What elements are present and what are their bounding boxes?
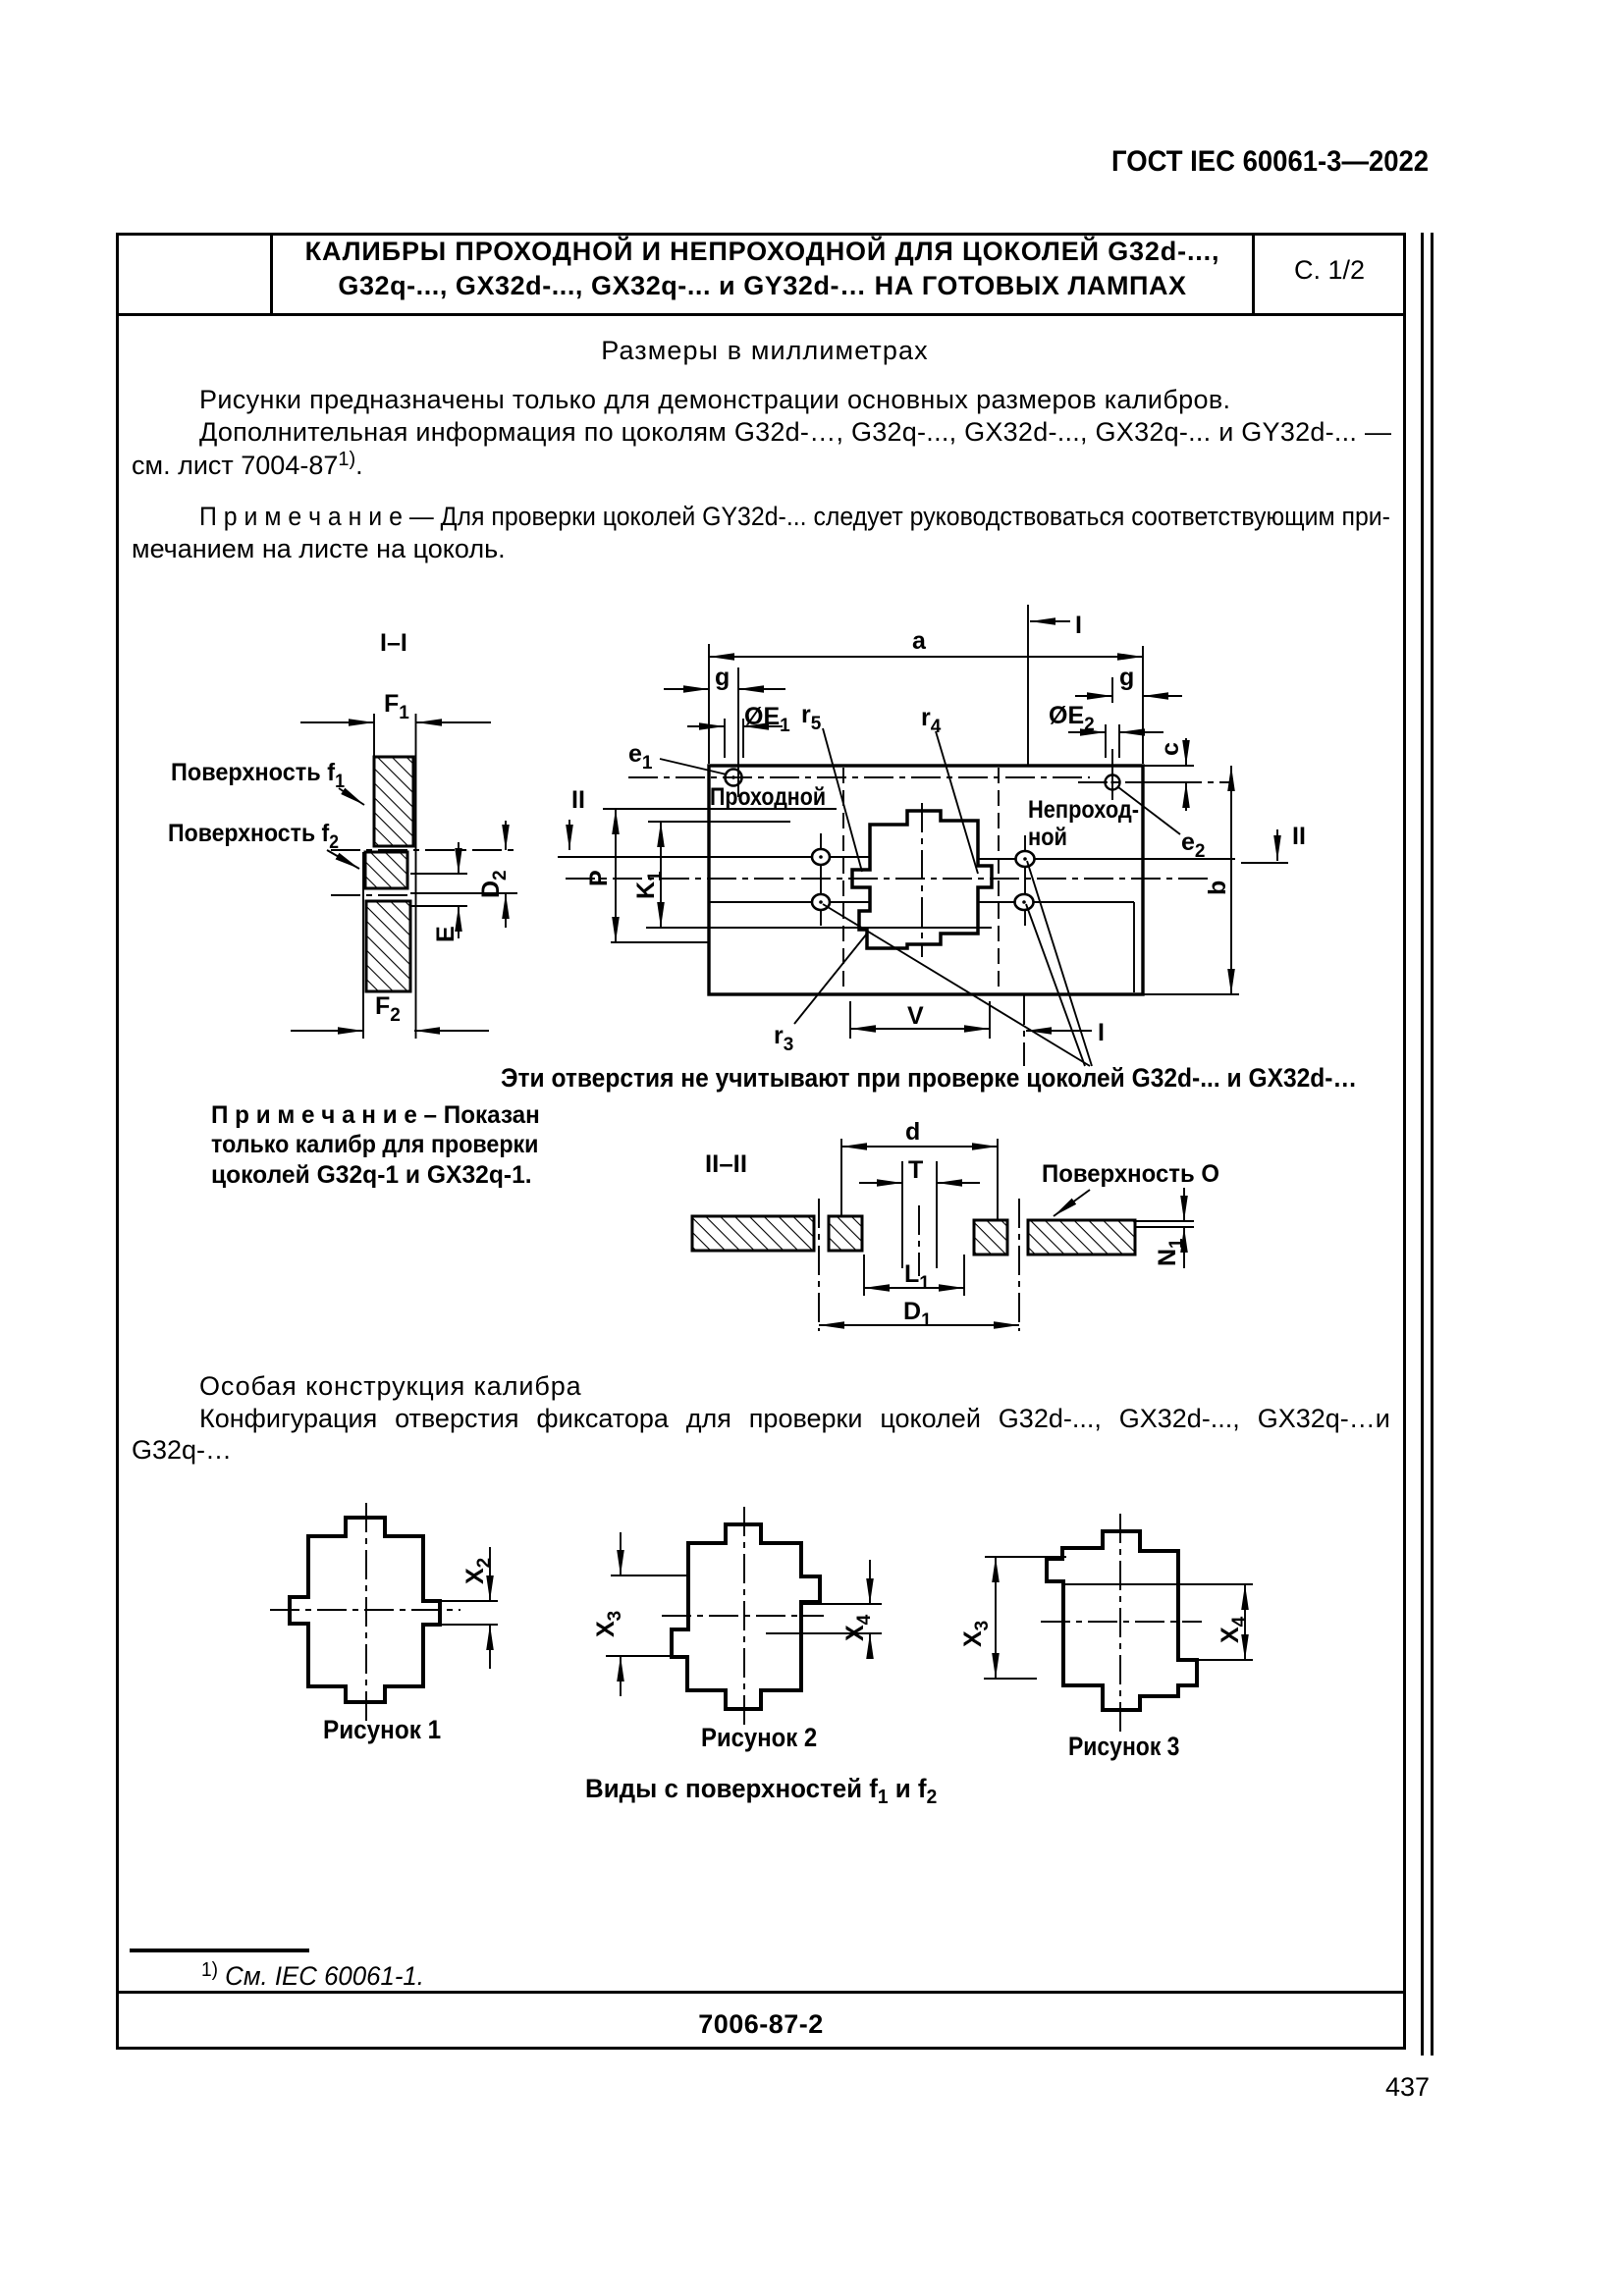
svg-text:F2: F2 [375,992,401,1026]
svg-text:Поверхность f2: Поверхность f2 [168,820,339,853]
svg-text:g: g [715,664,730,691]
svg-text:I: I [1098,1019,1105,1046]
svg-text:ØE2: ØE2 [1049,702,1095,735]
svg-text:Непроход-: Непроход- [1028,796,1139,824]
svg-text:II: II [571,786,585,814]
svg-text:P: P [585,870,613,886]
svg-text:e1: e1 [628,740,653,774]
svg-text:X3: X3 [592,1611,625,1637]
svg-text:g: g [1119,664,1134,691]
svg-text:r4: r4 [921,704,942,737]
svg-text:r5: r5 [801,701,822,734]
svg-text:r3: r3 [774,1022,793,1055]
svg-text:c: c [1157,742,1184,756]
svg-text:a: a [912,627,927,655]
svg-text:Проходной: Проходной [710,783,826,811]
svg-text:T: T [908,1156,923,1184]
svg-text:II–II: II–II [705,1150,747,1178]
svg-text:ØE1: ØE1 [744,703,790,736]
svg-text:e2: e2 [1181,828,1205,862]
svg-text:I–I: I–I [380,629,407,657]
svg-text:II: II [1292,823,1306,850]
svg-text:Поверхность f1: Поверхность f1 [171,759,345,792]
svg-text:X3: X3 [959,1621,993,1647]
svg-text:I: I [1075,612,1082,639]
svg-text:E: E [432,926,460,942]
svg-text:d: d [905,1118,920,1146]
svg-text:Поверхность О: Поверхность О [1042,1160,1219,1188]
svg-text:N1: N1 [1154,1238,1187,1266]
svg-text:F1: F1 [384,690,409,723]
svg-text:ной: ной [1028,824,1067,851]
svg-text:b: b [1204,881,1231,895]
svg-text:V: V [907,1002,924,1030]
